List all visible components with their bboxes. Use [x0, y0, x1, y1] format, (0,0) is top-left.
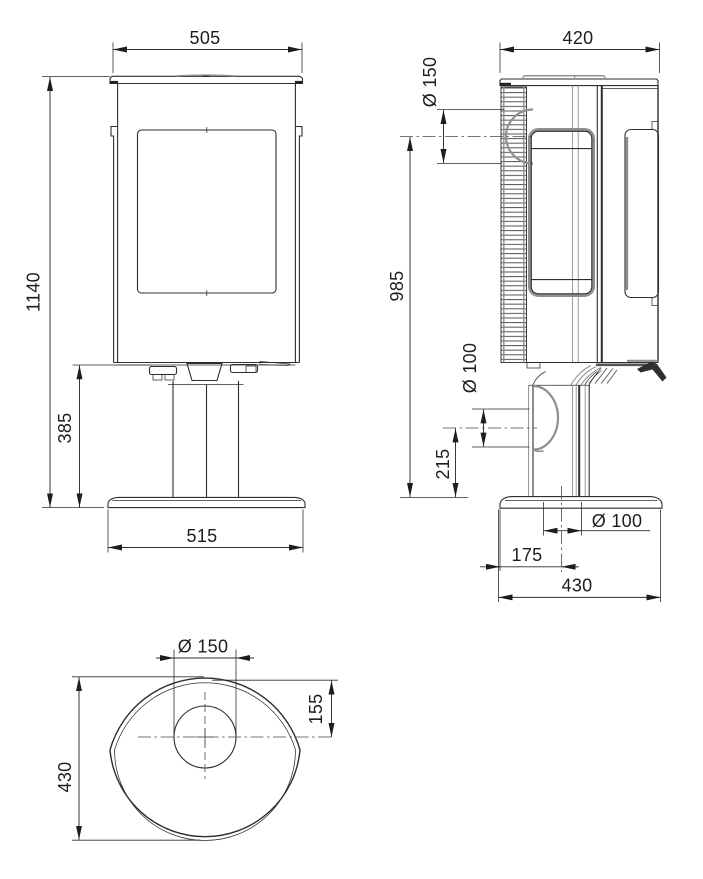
- dim-label-side-flue-height: 985: [387, 271, 407, 302]
- side-view: 420 Ø 150 985 Ø 100 215: [387, 28, 667, 602]
- stove-dimension-drawing: 505 1140 385 515: [0, 0, 703, 879]
- dim-label-side-rear-inlet-height: 215: [433, 449, 453, 480]
- dim-front-base-width: 515: [108, 510, 303, 553]
- side-rear-inlet-arc: [533, 386, 558, 450]
- dim-top-body-depth: 430: [55, 677, 204, 840]
- dim-side-floor-inlet-diameter: Ø 100: [544, 502, 651, 536]
- dim-label-side-base-depth: 430: [562, 576, 593, 596]
- dim-label-side-rear-inlet-diameter: Ø 100: [460, 343, 480, 394]
- front-pedestal: [168, 381, 244, 497]
- dim-side-floor-inlet-offset: 175: [480, 510, 579, 572]
- front-view: 505 1140 385 515: [24, 28, 306, 553]
- front-top-plate: [110, 75, 303, 84]
- dim-label-side-flue-diameter: Ø 150: [420, 57, 440, 108]
- dim-side-rear-inlet-height: 215: [433, 428, 456, 497]
- dim-label-top-body-depth: 430: [55, 762, 75, 793]
- side-pedestal: [529, 371, 602, 497]
- dim-side-flue-diameter: Ø 150: [420, 57, 504, 164]
- dim-front-top-width: 505: [113, 28, 302, 73]
- dim-front-pedestal-height: 385: [55, 365, 152, 507]
- dim-label-front-pedestal-height: 385: [55, 413, 75, 444]
- side-base-plate: [500, 497, 662, 509]
- dim-label-top-flue-offset: 155: [306, 694, 326, 725]
- dim-label-top-flue-diameter: Ø 150: [178, 637, 229, 657]
- dim-label-front-overall-height: 1140: [24, 272, 44, 312]
- dim-label-side-top-depth: 420: [563, 28, 594, 48]
- dim-label-front-base-width: 515: [187, 526, 218, 546]
- front-body: [111, 84, 302, 366]
- dim-top-flue-offset: 155: [212, 680, 338, 737]
- dim-label-side-floor-inlet-offset: 175: [512, 545, 543, 565]
- dim-label-side-floor-inlet-diameter: Ø 100: [592, 511, 643, 531]
- top-view: Ø 150 155 430: [55, 637, 338, 841]
- dim-label-front-top-width: 505: [190, 28, 221, 48]
- drawing-canvas: 505 1140 385 515: [0, 0, 703, 879]
- side-top-plate: [500, 76, 658, 86]
- front-underside-controls: [150, 362, 291, 381]
- side-front-recess: [625, 122, 659, 306]
- side-underside-mechanism: [527, 361, 667, 385]
- front-door-glass: [138, 127, 277, 296]
- side-back-heat-fins: [501, 87, 527, 363]
- side-glass-panel: [530, 130, 594, 296]
- front-base-plate: [108, 497, 305, 507]
- dim-side-top-depth: 420: [500, 28, 660, 73]
